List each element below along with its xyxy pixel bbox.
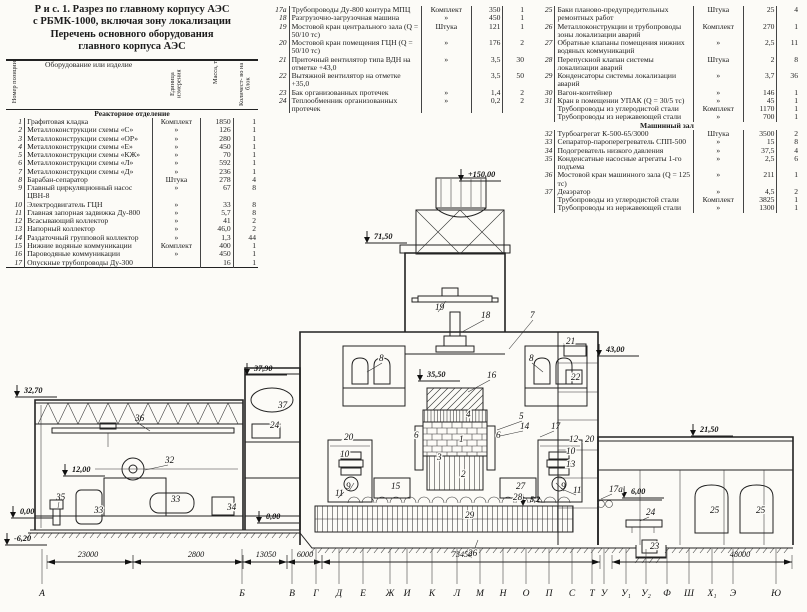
callout-label: 24: [646, 507, 656, 517]
cell-qty: 11: [777, 39, 800, 56]
callout-label: 11: [335, 488, 344, 498]
cell-mass: 25: [743, 6, 777, 23]
cell-name: Опускные трубопроводы Ду-300: [25, 259, 153, 268]
turbine-hall: [30, 400, 300, 530]
callout-label: 24: [270, 420, 280, 430]
callout-label: 9: [561, 481, 566, 491]
elevation-mark: 37,90: [244, 363, 287, 375]
callout: 12: [569, 434, 579, 444]
reactor-building: [300, 178, 598, 545]
cell-num: 19: [266, 23, 289, 40]
cell-num: 29: [534, 72, 555, 89]
elevation-label: 35,50: [426, 370, 445, 379]
elevation-mark: 35,50: [417, 369, 460, 381]
callout-label: 34: [226, 502, 237, 512]
axis-letters: АБВГДЕЖИКЛМНОПСТУУ₁У₂ФШХ₁ЭЮ: [38, 549, 781, 599]
elevation-label: 6,00: [631, 487, 645, 496]
cell-mass: 16: [200, 259, 233, 268]
table-row: 28Перепускной клапан системы локализации…: [534, 56, 800, 73]
cell-qty: 1: [777, 204, 800, 212]
cell-mass: 67: [200, 184, 233, 201]
cell-qty: 2: [503, 97, 526, 114]
axis-label: У₁: [621, 589, 631, 599]
elevation-label: +150,00: [468, 170, 495, 179]
cell-name: Перепускной клапан системы локализации а…: [555, 56, 693, 73]
cell-mass: 3,5: [471, 56, 502, 73]
callout-label: 19: [435, 302, 445, 312]
callout: 25: [710, 505, 720, 515]
axis-label: С: [569, 589, 576, 599]
cell-unit: »: [153, 184, 201, 201]
cell-qty: 8: [777, 56, 800, 73]
axis-label: Х₁: [706, 589, 716, 599]
equipment-table: 17аТрубопроводы Ду-800 контура МПЦКомпле…: [266, 6, 526, 113]
callout: 23: [650, 541, 660, 551]
cell-qty: 1: [777, 113, 800, 121]
cell-name: Мостовой кран центрального зала (Q = 50/…: [289, 23, 421, 40]
cell-num: 26: [534, 23, 555, 40]
callout: 17а: [601, 484, 623, 499]
axis: У: [601, 549, 609, 599]
cell-mass: 1300: [743, 204, 777, 212]
dimension-label: 23000: [78, 550, 98, 559]
cell-num: [534, 204, 555, 212]
cell-qty: 50: [503, 72, 526, 89]
cell-num: 21: [266, 56, 289, 73]
axis-label: О: [523, 589, 530, 599]
callout-label: 22: [571, 372, 581, 382]
callout: 10: [340, 449, 350, 459]
cell-num: [534, 196, 555, 204]
cell-qty: 1: [233, 259, 258, 268]
cell-qty: 30: [503, 56, 526, 73]
axis: Г: [312, 549, 319, 599]
callout: 8: [367, 353, 384, 372]
heat-exchanger: [626, 520, 662, 527]
cell-name: Обратные клапаны помещения нижних водяны…: [555, 39, 693, 56]
axis: Е: [359, 549, 366, 599]
cell-num: 24: [266, 97, 289, 114]
callout-label: 23: [650, 541, 660, 551]
deaerator-bay: [245, 368, 300, 530]
axis-label: К: [428, 589, 436, 599]
turbine-pedestal: [104, 478, 166, 516]
callout-label: 16: [487, 370, 497, 380]
callout-label: 17а: [609, 484, 623, 494]
cell-name: Теплообменник организованных протечек: [289, 97, 421, 114]
axis-label: Т: [589, 589, 595, 599]
table-row: 20Мостовой кран помещения ГЦН (Q = 50/10…: [266, 39, 526, 56]
callout-label: 8: [529, 353, 534, 363]
axis: Т: [589, 549, 595, 599]
elevation-mark: +150,00: [458, 169, 501, 181]
cell-unit: [153, 259, 201, 268]
cell-unit: »: [693, 39, 743, 56]
callout: 33: [93, 505, 104, 515]
auxiliary-annex: [598, 437, 794, 557]
cell-qty: 8: [233, 184, 258, 201]
cell-unit: [421, 72, 471, 89]
callout-label: 21: [566, 336, 575, 346]
caption-line: Р и с. 1. Разрез по главному корпусу АЭС: [6, 4, 258, 16]
cell-unit: »: [693, 204, 743, 212]
equipment-table: 25Баки планово-предупредительных ремонтн…: [534, 6, 800, 213]
axis: У₁: [621, 549, 631, 599]
axis-label: Л: [453, 589, 461, 599]
cell-qty: 4: [777, 6, 800, 23]
equipment-table: Номер позиции Оборудование или изделие Е…: [6, 59, 258, 268]
callout-label: 33: [170, 494, 181, 504]
cell-num: 9: [6, 184, 25, 201]
cell-num: 31: [534, 97, 555, 105]
cell-unit: »: [693, 72, 743, 89]
callout-label: 1: [459, 434, 464, 444]
caption-line: главного корпуса АЭС: [6, 41, 258, 53]
callout: 11: [564, 485, 582, 495]
callout-label: 37: [277, 400, 288, 410]
callout-label: 33: [93, 505, 104, 515]
header-name: Оборудование или изделие: [25, 60, 153, 110]
callout: 25: [756, 505, 766, 515]
axis-label: Н: [499, 589, 508, 599]
axis: Ш: [683, 549, 695, 599]
table-row: 9Главный циркуляционный насос ЦВН-8»678: [6, 184, 258, 201]
callout-label: 12: [569, 434, 579, 444]
middle-column: 17аТрубопроводы Ду-800 контура МПЦКомпле…: [266, 6, 526, 113]
cell-num: 28: [534, 56, 555, 73]
callout-label: 32: [164, 455, 175, 465]
callout-label: 28: [513, 492, 523, 502]
cell-name: Мостовой кран машинного зала (Q = 125 тс…: [555, 171, 693, 188]
callout: 8: [529, 353, 543, 372]
dimension: 73450: [322, 550, 600, 569]
cell-mass: 2,5: [743, 155, 777, 172]
cell-num: 37: [534, 188, 555, 196]
callout: 21: [566, 336, 575, 346]
axis-label: Э: [730, 589, 736, 599]
callout: 20: [585, 434, 595, 444]
callout: 1: [459, 434, 464, 444]
axis: К: [428, 549, 436, 599]
cell-unit: »: [693, 113, 743, 121]
callout-label: 10: [340, 449, 350, 459]
axis: Ю: [770, 549, 781, 599]
callout: 7: [509, 310, 535, 349]
cell-name: Металлоконструкции и трубопроводы зоны л…: [555, 23, 693, 40]
axis: Х₁: [706, 549, 716, 599]
cell-mass: 700: [743, 113, 777, 121]
cell-unit: »: [693, 171, 743, 188]
scanned-figure-page: +150,0071,5043,0037,9035,5032,7021,5012,…: [0, 0, 807, 612]
callout-label: 27: [516, 481, 526, 491]
callout: 18: [462, 310, 491, 332]
callout: 27: [516, 481, 526, 491]
callout: 6: [496, 430, 501, 440]
upper-shield: [427, 388, 483, 410]
dimension: 48000: [612, 550, 792, 569]
callout-label: 36: [134, 413, 145, 423]
cell-unit: »: [421, 39, 471, 56]
cell-num: [534, 105, 555, 113]
elevation-mark: 21,50: [690, 424, 733, 436]
cell-num: 25: [534, 6, 555, 23]
cell-num: 36: [534, 171, 555, 188]
drum-separator: [352, 358, 368, 384]
axis-label: Б: [238, 589, 245, 599]
table-row: 35Конденсатные насосные агрегаты 1-го по…: [534, 155, 800, 172]
cell-num: 22: [266, 72, 289, 89]
cell-qty: 1: [503, 23, 526, 40]
elevation-mark: 12,00: [62, 464, 105, 476]
cell-qty: 1: [777, 23, 800, 40]
elevation-label: 0,00: [266, 512, 280, 521]
callout: 35: [55, 492, 66, 508]
cell-qty: 36: [777, 72, 800, 89]
cell-name: Баки планово-предупредительных ремонтных…: [555, 6, 693, 23]
cell-num: 35: [534, 155, 555, 172]
central-hall-crane: [418, 296, 492, 302]
callout-label: 2: [461, 469, 466, 479]
table-row: 29Конденсаторы системы локализации авари…: [534, 72, 800, 89]
callout: 15: [391, 481, 401, 491]
table-row: 25Баки планово-предупредительных ремонтн…: [534, 6, 800, 23]
cell-mass: 121: [471, 23, 502, 40]
axis-label: У: [601, 589, 609, 599]
elevation-label: 21,50: [699, 425, 718, 434]
callout: 3: [436, 452, 442, 462]
cell-num: [534, 113, 555, 121]
callout: 37: [277, 400, 288, 410]
caption-line: Перечень основного оборудования: [6, 29, 258, 41]
callout-label: 4: [466, 409, 471, 419]
elevation-mark: 43,00: [596, 344, 639, 356]
callout-label: 20: [585, 434, 595, 444]
cell-mass: 3,5: [471, 72, 502, 89]
callout: 13: [566, 459, 576, 469]
callout: 33: [170, 494, 181, 504]
cell-name: Конденсаторы системы локализации аварий: [555, 72, 693, 89]
callout: 24: [270, 420, 280, 430]
callout-label: 8: [379, 353, 384, 363]
callout: 11: [335, 488, 344, 498]
callout: 2: [461, 469, 466, 479]
elevation-mark: -6,20: [4, 533, 47, 545]
cell-num: 27: [534, 39, 555, 56]
axis: Б: [238, 549, 245, 599]
callout-label: 9: [346, 481, 351, 491]
dimension: 23000: [47, 550, 133, 569]
callout-label: 20: [344, 432, 354, 442]
cell-unit: »: [153, 250, 201, 258]
axis-label: П: [545, 589, 554, 599]
callout-label: 25: [756, 505, 766, 515]
ground: [27, 533, 793, 563]
dimension-label: 13050: [256, 550, 276, 559]
elevation-label: 32,70: [23, 386, 42, 395]
dimension: 13050: [243, 550, 287, 569]
cell-name: Трубопроводы из нержавеющей стали: [555, 204, 693, 212]
elevation-label: 0,00: [20, 507, 34, 516]
callout: 6: [414, 430, 419, 440]
dimension-label: 6000: [297, 550, 313, 559]
callout-label: 6: [496, 430, 501, 440]
axis: Н: [499, 549, 508, 599]
callout: 29: [465, 510, 475, 520]
cell-qty: 1: [777, 171, 800, 188]
cell-unit: Штука: [421, 23, 471, 40]
callout-label: 3: [436, 452, 442, 462]
table-row: 36Мостовой кран машинного зала (Q = 125 …: [534, 171, 800, 188]
axis: И: [403, 549, 412, 599]
elevation-label: 37,90: [253, 364, 272, 373]
callout: 32: [145, 455, 175, 470]
cell-name: Конденсатные насосные агрегаты 1-го подъ…: [555, 155, 693, 172]
cell-mass: 0,2: [471, 97, 502, 114]
cell-mass: 211: [743, 171, 777, 188]
callout-label: 13: [566, 459, 576, 469]
cell-mass: 270: [743, 23, 777, 40]
axis: В: [289, 549, 295, 599]
header-unit: Единица измерения: [153, 60, 201, 110]
callout: 9: [346, 481, 354, 491]
cell-unit: »: [693, 155, 743, 172]
callout-label: 18: [481, 310, 491, 320]
elevation-label: 71,50: [374, 232, 392, 241]
callout-label: 11: [573, 485, 582, 495]
header-mass: Масса, т: [200, 60, 233, 110]
cell-mass: 3,7: [743, 72, 777, 89]
callout-label: 14: [520, 421, 530, 431]
cell-unit: Комплект: [693, 23, 743, 40]
table-header-row: Номер позиции Оборудование или изделие Е…: [6, 60, 258, 110]
callout-label: 29: [465, 510, 475, 520]
elevation-mark: 0,00: [256, 511, 299, 523]
axis: С: [569, 549, 576, 599]
axis-label: Ш: [683, 589, 695, 599]
callout: 19: [435, 301, 446, 312]
machine-hall-crane: [52, 428, 234, 433]
callout-label: 6: [414, 430, 419, 440]
cell-num: 20: [266, 39, 289, 56]
callout: 28: [513, 492, 523, 502]
axis-label: И: [403, 589, 412, 599]
cell-unit: »: [421, 97, 471, 114]
elevation-mark: 6,00: [621, 486, 664, 498]
callout: 14: [500, 421, 530, 436]
axis-label: Ф: [663, 589, 671, 599]
axis: О: [523, 549, 530, 599]
cell-unit: Штука: [693, 6, 743, 23]
callout-label: 7: [530, 310, 535, 320]
axis: Д: [335, 549, 343, 599]
cell-name: Мостовой кран помещения ГЦН (Q = 50/10 т…: [289, 39, 421, 56]
dimension: 2800: [133, 550, 243, 569]
cell-name: Вытяжной вентилятор на отметке +35,0: [289, 72, 421, 89]
elevation-label: 12,00: [72, 465, 90, 474]
callout-label: 5: [519, 411, 524, 421]
cell-unit: »: [421, 56, 471, 73]
cell-qty: 6: [777, 155, 800, 172]
dimension-line: 2300028001305060007345048000: [47, 550, 792, 569]
left-column: Р и с. 1. Разрез по главному корпусу АЭС…: [6, 4, 258, 268]
elevation-label: 43,00: [605, 345, 624, 354]
callout: 22: [571, 372, 581, 382]
callout-label: 35: [55, 492, 66, 502]
figure-caption: Р и с. 1. Разрез по главному корпусу АЭС…: [6, 4, 258, 54]
callout-label: 10: [566, 446, 576, 456]
header-num: Номер позиции: [6, 60, 25, 110]
table-row: 21Приточный вентилятор типа ВДН на отмет…: [266, 56, 526, 73]
callout: 20: [344, 432, 354, 442]
cell-mass: 2,5: [743, 39, 777, 56]
callout-label: 25: [710, 505, 720, 515]
callout: 4: [466, 409, 471, 419]
axis-label: Ю: [770, 589, 781, 599]
table-row: Трубопроводы из нержавеющей стали»13001: [534, 204, 800, 212]
elevation-label: 5,2: [530, 495, 540, 504]
table-row: 17Опускные трубопроводы Ду-300161: [6, 259, 258, 268]
elevation-mark: 71,50: [364, 231, 407, 243]
axis: Ж: [385, 549, 396, 599]
axis-label: А: [38, 589, 45, 599]
callout-label: 15: [391, 481, 401, 491]
table-row: 26Металлоконструкции и трубопроводы зоны…: [534, 23, 800, 40]
table-row: 22Вытяжной вентилятор на отметке +35,03,…: [266, 72, 526, 89]
axis-label: Д: [335, 589, 343, 599]
axis: П: [545, 549, 554, 599]
table-row: 24Теплообменник организованных протечек»…: [266, 97, 526, 114]
table-row: 27Обратные клапаны помещения нижних водя…: [534, 39, 800, 56]
axis-label: Е: [359, 589, 366, 599]
dimension-label: 2800: [188, 550, 204, 559]
right-column: 25Баки планово-предупредительных ремонтн…: [534, 6, 800, 213]
axis-label: Ж: [385, 589, 396, 599]
callout: 24: [640, 507, 656, 521]
cell-qty: 2: [503, 39, 526, 56]
graphite-stack: [423, 422, 487, 456]
cell-name: Главный циркуляционный насос ЦВН-8: [25, 184, 153, 201]
cell-mass: 176: [471, 39, 502, 56]
dimension-label: 73450: [452, 550, 472, 559]
elevation-label: -6,20: [14, 534, 31, 543]
axis-label: У₂: [641, 589, 651, 599]
axis: А: [38, 549, 45, 599]
cell-num: 17: [6, 259, 25, 268]
cell-mass: 2: [743, 56, 777, 73]
cell-unit: Штука: [693, 56, 743, 73]
cell-name: Приточный вентилятор типа ВДН на отметке…: [289, 56, 421, 73]
central-hall: [405, 253, 505, 332]
axis-label: Г: [312, 589, 319, 599]
callout-label: 17: [551, 421, 561, 431]
header-qty: Количест- во на блок: [233, 60, 258, 110]
callout: 10: [566, 446, 576, 456]
elevation-mark: 32,70: [14, 385, 57, 397]
axis-label: М: [475, 589, 485, 599]
callout: 34: [226, 502, 237, 512]
table-row: 19Мостовой кран центрального зала (Q = 5…: [266, 23, 526, 40]
caption-line: с РБМК-1000, включая зону локализации: [6, 16, 258, 28]
axis-label: В: [289, 589, 295, 599]
